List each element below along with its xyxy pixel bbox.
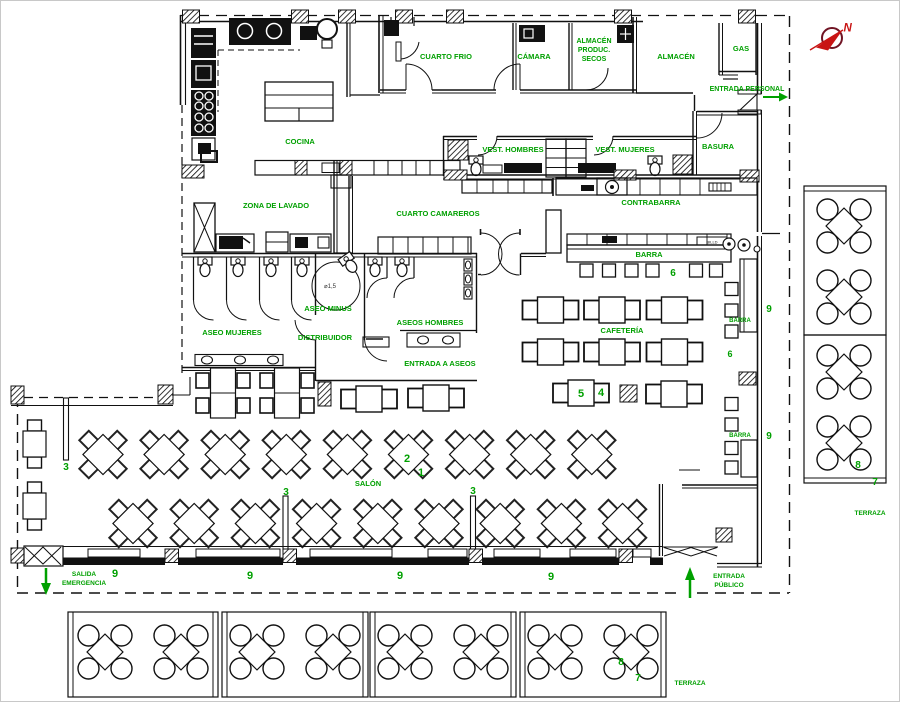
svg-text:CUARTO FRIO: CUARTO FRIO: [420, 52, 472, 61]
svg-text:SECOS: SECOS: [582, 56, 607, 63]
svg-text:9: 9: [548, 571, 554, 583]
svg-text:BASURA: BASURA: [702, 142, 735, 151]
svg-text:9: 9: [397, 570, 403, 582]
svg-text:4: 4: [598, 387, 605, 399]
svg-text:ALMACÉN: ALMACÉN: [577, 36, 612, 45]
svg-text:9: 9: [766, 304, 772, 315]
svg-text:VEST. HOMBRES: VEST. HOMBRES: [482, 145, 543, 154]
svg-text:8: 8: [855, 460, 861, 471]
svg-text:1: 1: [418, 467, 424, 479]
svg-text:VEST. MUJERES: VEST. MUJERES: [595, 145, 654, 154]
svg-text:6: 6: [670, 268, 676, 279]
svg-text:7: 7: [635, 673, 641, 684]
svg-text:BARRA: BARRA: [635, 250, 663, 259]
svg-text:9: 9: [247, 570, 253, 582]
svg-text:DISTRIBUIDOR: DISTRIBUIDOR: [298, 333, 353, 342]
svg-text:COCINA: COCINA: [285, 137, 315, 146]
svg-text:TERRAZA: TERRAZA: [854, 510, 885, 517]
svg-text:6: 6: [727, 349, 732, 359]
svg-text:3: 3: [63, 462, 69, 473]
svg-text:PRODUC.: PRODUC.: [578, 47, 610, 54]
svg-text:ENTRADA A ASEOS: ENTRADA A ASEOS: [404, 359, 475, 368]
svg-text:BARRA: BARRA: [729, 433, 751, 439]
svg-text:ALMACÉN: ALMACÉN: [657, 52, 695, 61]
svg-text:9: 9: [766, 431, 772, 442]
svg-text:PÚBLICO: PÚBLICO: [714, 580, 743, 589]
svg-text:ASEOS HOMBRES: ASEOS HOMBRES: [397, 318, 464, 327]
svg-text:ENTRADA PERSONAL: ENTRADA PERSONAL: [710, 86, 786, 93]
svg-text:CAFETERÍA: CAFETERÍA: [601, 326, 645, 335]
svg-text:ENTRADA: ENTRADA: [713, 573, 745, 580]
svg-text:3: 3: [470, 486, 476, 497]
svg-text:CUARTO CAMAREROS: CUARTO CAMAREROS: [396, 209, 479, 218]
svg-text:BARRA: BARRA: [729, 318, 751, 324]
svg-text:CONTRABARRA: CONTRABARRA: [621, 198, 681, 207]
svg-text:SALIDA: SALIDA: [72, 571, 97, 578]
svg-text:ASEO MUJERES: ASEO MUJERES: [202, 328, 262, 337]
svg-text:BILLD: BILLD: [706, 240, 717, 245]
svg-text:GAS: GAS: [733, 44, 749, 53]
svg-text:5: 5: [578, 388, 584, 400]
svg-text:3: 3: [283, 487, 289, 498]
svg-text:8: 8: [618, 657, 624, 668]
svg-text:ASEO MINUS: ASEO MINUS: [304, 304, 352, 313]
svg-text:⌀1,5: ⌀1,5: [324, 284, 337, 290]
svg-text:TERRAZA: TERRAZA: [674, 680, 705, 687]
svg-text:7: 7: [872, 477, 878, 488]
svg-text:SALÓN: SALÓN: [355, 479, 381, 488]
svg-text:EMERGENCIA: EMERGENCIA: [62, 580, 106, 587]
svg-text:CÁMARA: CÁMARA: [517, 52, 551, 61]
svg-text:9: 9: [112, 568, 118, 580]
svg-text:N: N: [844, 23, 853, 35]
svg-text:2: 2: [404, 453, 410, 465]
svg-text:ZONA DE LAVADO: ZONA DE LAVADO: [243, 201, 309, 210]
